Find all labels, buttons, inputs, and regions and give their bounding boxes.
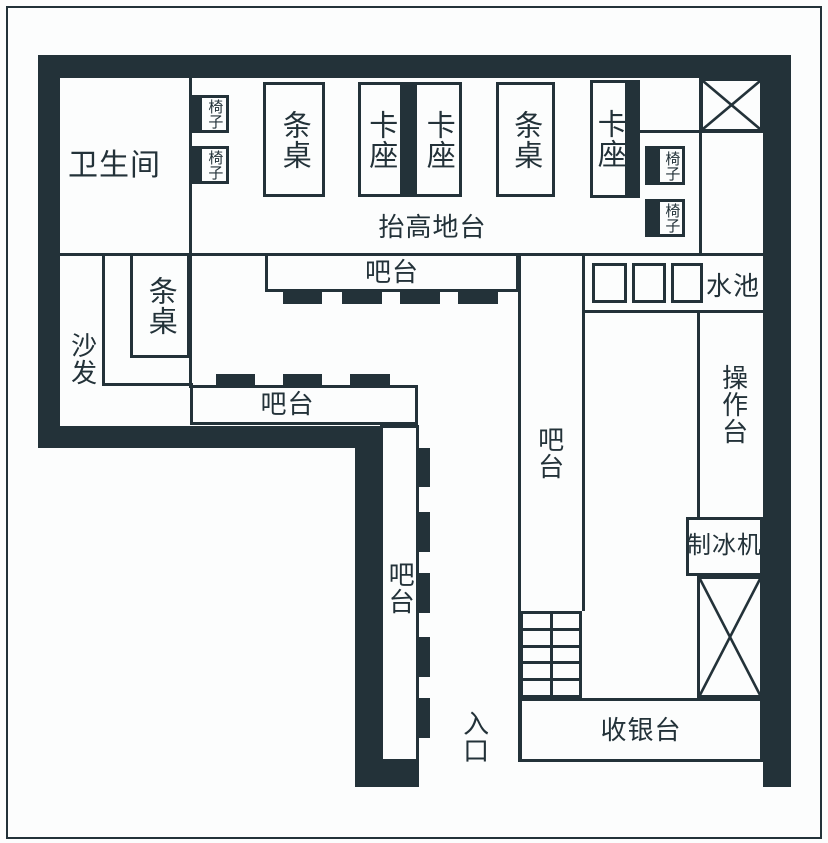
x-marked-area-bottom bbox=[697, 576, 763, 698]
booth-3-side-wall bbox=[628, 80, 640, 198]
wall-top bbox=[38, 55, 791, 78]
shelf-cell bbox=[553, 631, 580, 645]
booth-divider-wall bbox=[403, 82, 414, 197]
shelf-cell bbox=[523, 614, 550, 628]
bar-stool bbox=[458, 292, 498, 304]
wall-left bbox=[38, 78, 60, 426]
bar-counter-leftwing-label: 吧台 bbox=[380, 553, 419, 623]
wall-bottom-left bbox=[38, 426, 380, 448]
sink-label: 水池 bbox=[702, 271, 764, 303]
bar-stool bbox=[216, 374, 255, 385]
booth-3-label: 卡座 bbox=[590, 80, 628, 198]
bar-stool bbox=[283, 292, 322, 304]
chair-2-label: 椅子 bbox=[199, 146, 229, 184]
shelf-cell bbox=[553, 614, 580, 628]
worktop-label: 操作台 bbox=[715, 342, 751, 467]
shelf-cell bbox=[523, 648, 550, 662]
sofa-label: 沙发 bbox=[64, 326, 100, 392]
wall-mid-vertical bbox=[355, 448, 380, 787]
bar-corridor-label: 吧台 bbox=[529, 418, 569, 488]
bar-counter-lower-label: 吧台 bbox=[230, 388, 345, 422]
restroom-label: 卫生间 bbox=[62, 148, 167, 184]
bar-stool bbox=[350, 374, 390, 385]
bar-stool bbox=[419, 448, 430, 487]
partition-line-sofa-bottom bbox=[102, 383, 193, 386]
chair-4-backrest bbox=[645, 199, 657, 237]
booth-2-label: 卡座 bbox=[414, 82, 462, 197]
shelf-cell bbox=[523, 681, 550, 695]
chair-1-label: 椅子 bbox=[199, 95, 229, 133]
chair-3-label: 椅子 bbox=[657, 146, 685, 185]
partition-line-sofa-right bbox=[102, 253, 105, 386]
long-table-1-label: 条桌 bbox=[263, 82, 325, 197]
bar-stool bbox=[419, 512, 430, 552]
sink-unit-2 bbox=[632, 263, 666, 303]
chair-4-label: 椅子 bbox=[657, 199, 685, 237]
shelf-cell bbox=[553, 648, 580, 662]
ice-machine-label: 制冰机 bbox=[686, 519, 763, 574]
bar-stool bbox=[419, 698, 430, 738]
x-cross-icon bbox=[703, 81, 760, 129]
cashier-counter-label: 收银台 bbox=[519, 712, 763, 750]
x-marked-area-top bbox=[700, 78, 763, 132]
shelf-cell bbox=[553, 664, 580, 678]
bar-stool bbox=[419, 637, 430, 677]
long-table-2-label: 条桌 bbox=[496, 82, 555, 197]
bar-stool bbox=[342, 292, 382, 304]
bar-stool bbox=[400, 292, 440, 304]
partition-line-worktop-left bbox=[697, 312, 700, 520]
chair-3-backrest bbox=[645, 146, 657, 185]
chair-2-backrest bbox=[189, 146, 199, 184]
bar-stool bbox=[419, 573, 430, 613]
shelf-cell bbox=[523, 664, 550, 678]
sink-unit-1 bbox=[592, 263, 627, 303]
shelf-grid bbox=[520, 611, 582, 698]
long-table-3-label: 条桌 bbox=[130, 253, 190, 358]
wall-bottom-stub bbox=[380, 762, 419, 787]
wall-right bbox=[763, 78, 791, 787]
x-cross-icon bbox=[700, 579, 760, 695]
sink-unit-3 bbox=[671, 263, 703, 303]
chair-1-backrest bbox=[189, 95, 199, 133]
partition-line-corridor-right bbox=[582, 253, 585, 611]
partition-line-sink-bottom bbox=[583, 310, 763, 313]
shelf-cell bbox=[553, 681, 580, 695]
raised-platform-label: 抬高地台 bbox=[360, 212, 505, 244]
floor-plan: 条桌 卡座 卡座 条桌 卡座 卫生间 椅子 椅子 椅子 椅子 抬高地台 吧台 bbox=[0, 0, 828, 843]
bar-counter-top-label: 吧台 bbox=[265, 255, 519, 291]
booth-1-label: 卡座 bbox=[358, 82, 403, 197]
entrance-label: 入口 bbox=[457, 701, 491, 773]
bar-stool bbox=[283, 374, 322, 385]
shelf-cell bbox=[523, 631, 550, 645]
